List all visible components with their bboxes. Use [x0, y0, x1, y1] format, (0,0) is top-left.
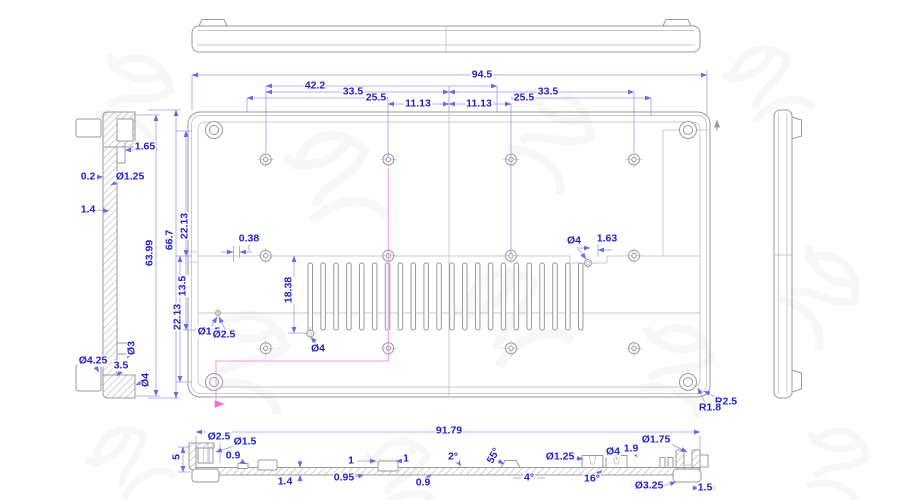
screw-hole-inner	[632, 254, 636, 258]
vent-slot	[566, 263, 571, 330]
case-foot	[199, 20, 227, 27]
vent-slot	[398, 263, 403, 330]
boss	[258, 460, 277, 470]
screw-hole-inner	[632, 346, 636, 350]
vent-slot	[553, 263, 558, 330]
small-hole	[307, 330, 314, 337]
case-foot	[663, 20, 691, 27]
case-foot	[792, 117, 802, 139]
case-foot	[76, 119, 101, 137]
left-section-view	[76, 112, 135, 398]
vent-slot	[527, 263, 532, 330]
screw-hole-inner	[264, 254, 268, 258]
boss	[378, 461, 398, 471]
case-foot	[792, 370, 802, 392]
vent-slot	[437, 263, 442, 330]
corner-hole-inner	[684, 126, 693, 135]
vent-slot	[475, 263, 480, 330]
dimension-lines	[95, 70, 722, 493]
vent-slot	[578, 263, 583, 330]
vent-slot	[347, 263, 352, 330]
screw-hole-inner	[632, 157, 636, 161]
case-foot	[673, 469, 701, 482]
cad-drawing-canvas: 1.650.2Ø1.251.463.9966.722.1313.522.13Ø3…	[0, 0, 900, 500]
right-side-view	[774, 110, 802, 398]
vent-slot	[514, 263, 519, 330]
corner-post	[673, 450, 708, 482]
vent-slot	[540, 263, 545, 330]
small-hole	[585, 260, 592, 267]
bottom-section-view	[189, 443, 708, 482]
screw-hole-inner	[509, 254, 513, 258]
corner-hole-inner	[684, 378, 693, 387]
vent-slot	[424, 263, 429, 330]
case-foot	[192, 469, 219, 482]
corner-hole-inner	[210, 378, 219, 387]
vent-slot	[488, 263, 493, 330]
vent-slots	[308, 263, 583, 333]
internal-corner-line	[663, 130, 708, 256]
screw-hole-inner	[264, 346, 268, 350]
screw-hole-inner	[509, 346, 513, 350]
drawing-geometry	[0, 0, 900, 500]
vent-slot	[450, 263, 455, 330]
vent-slot	[308, 263, 313, 333]
vent-slot	[385, 263, 390, 330]
vent-slot	[334, 263, 339, 330]
screw-boss	[582, 456, 603, 468]
vent-slot	[501, 263, 506, 330]
top-edge-view	[192, 20, 700, 53]
vent-slot	[372, 263, 377, 330]
vent-slot	[321, 263, 326, 330]
vent-slot	[360, 263, 365, 330]
vent-slot	[411, 263, 416, 330]
vent-slot	[463, 263, 468, 330]
screw-hole-inner	[264, 157, 268, 161]
corner-hole-inner	[210, 126, 219, 135]
